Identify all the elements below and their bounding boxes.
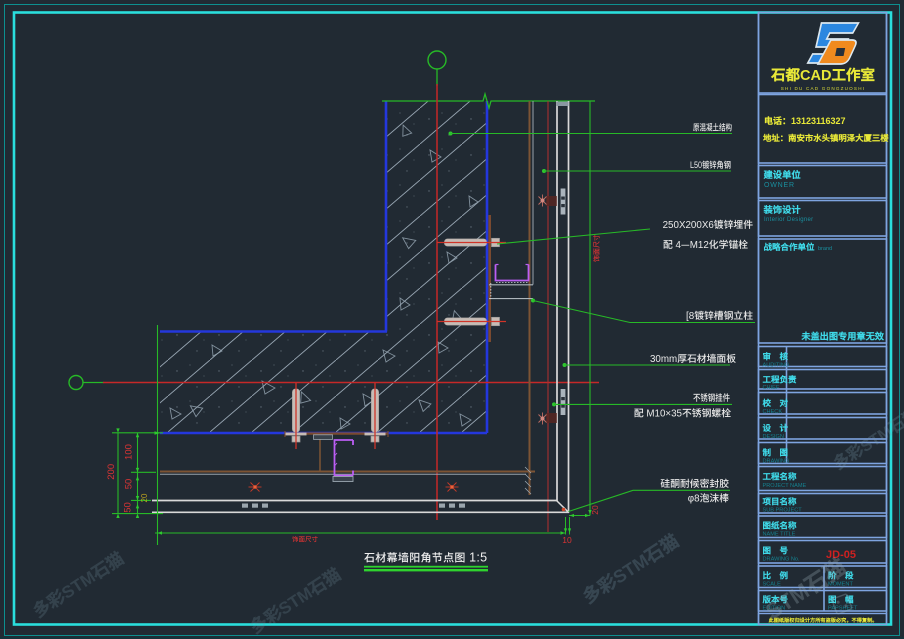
svg-text:电话：13123116327: 电话：13123116327 — [764, 114, 846, 127]
svg-text:配 4—M12化学锚栓: 配 4—M12化学锚栓 — [663, 237, 748, 251]
svg-text:20: 20 — [139, 493, 150, 502]
svg-text:[8镀锌槽钢立柱: [8镀锌槽钢立柱 — [686, 308, 753, 322]
svg-text:φ8泡沫棒: φ8泡沫棒 — [688, 491, 729, 505]
svg-text:原混凝土结构: 原混凝土结构 — [693, 121, 732, 134]
svg-text:DRAWING: DRAWING — [763, 457, 790, 465]
svg-text:PAPSHEET: PAPSHEET — [828, 604, 858, 612]
svg-text:250X200X6镀锌埋件: 250X200X6镀锌埋件 — [663, 217, 754, 231]
svg-text:50: 50 — [121, 479, 135, 490]
svg-text:战略合作单位: 战略合作单位 — [764, 241, 816, 253]
svg-text:200: 200 — [103, 464, 117, 480]
svg-text:30mm厚石材墙面板: 30mm厚石材墙面板 — [650, 351, 736, 365]
svg-text:饰面尺寸: 饰面尺寸 — [592, 234, 602, 262]
svg-text:20: 20 — [589, 505, 601, 515]
svg-text:Interior Designer: Interior Designer — [764, 214, 813, 223]
svg-text:NAME TITLE: NAME TITLE — [763, 530, 796, 538]
svg-text:建设单位: 建设单位 — [763, 167, 802, 181]
svg-text:硅酮耐候密封胶: 硅酮耐候密封胶 — [660, 476, 729, 490]
svg-text:石材幕墙阳角节点图 1:5: 石材幕墙阳角节点图 1:5 — [364, 547, 487, 566]
svg-text:饰面尺寸: 饰面尺寸 — [292, 534, 319, 544]
svg-text:PROJECT NAME: PROJECT NAME — [763, 481, 807, 489]
svg-text:AUDITING: AUDITING — [763, 361, 790, 369]
svg-text:未盖出图专用章无效: 未盖出图专用章无效 — [800, 329, 884, 343]
svg-text:SUB PROJECT: SUB PROJECT — [763, 506, 803, 514]
svg-text:CHIEF: CHIEF — [763, 383, 780, 391]
svg-text:brand: brand — [818, 244, 832, 252]
svg-text:10: 10 — [562, 534, 572, 546]
svg-text:DESIGN: DESIGN — [763, 432, 784, 440]
svg-text:OWNER: OWNER — [764, 180, 795, 190]
svg-text:石都CAD工作室: 石都CAD工作室 — [770, 64, 875, 85]
svg-text:CHECK: CHECK — [763, 407, 783, 415]
svg-text:不锈钢挂件: 不锈钢挂件 — [693, 390, 730, 404]
svg-text:100: 100 — [121, 444, 135, 460]
svg-text:SHI DU CAD GONGZUOSHI: SHI DU CAD GONGZUOSHI — [781, 86, 865, 92]
svg-text:配 M10×35不锈钢螺栓: 配 M10×35不锈钢螺栓 — [634, 406, 731, 420]
svg-text:L50镀锌角钢: L50镀锌角钢 — [690, 158, 731, 171]
svg-text:地址：南安市水头镇明泽大厦三楼: 地址：南安市水头镇明泽大厦三楼 — [763, 132, 889, 144]
svg-text:DRAWING No.: DRAWING No. — [763, 555, 801, 563]
svg-text:50: 50 — [120, 502, 134, 513]
